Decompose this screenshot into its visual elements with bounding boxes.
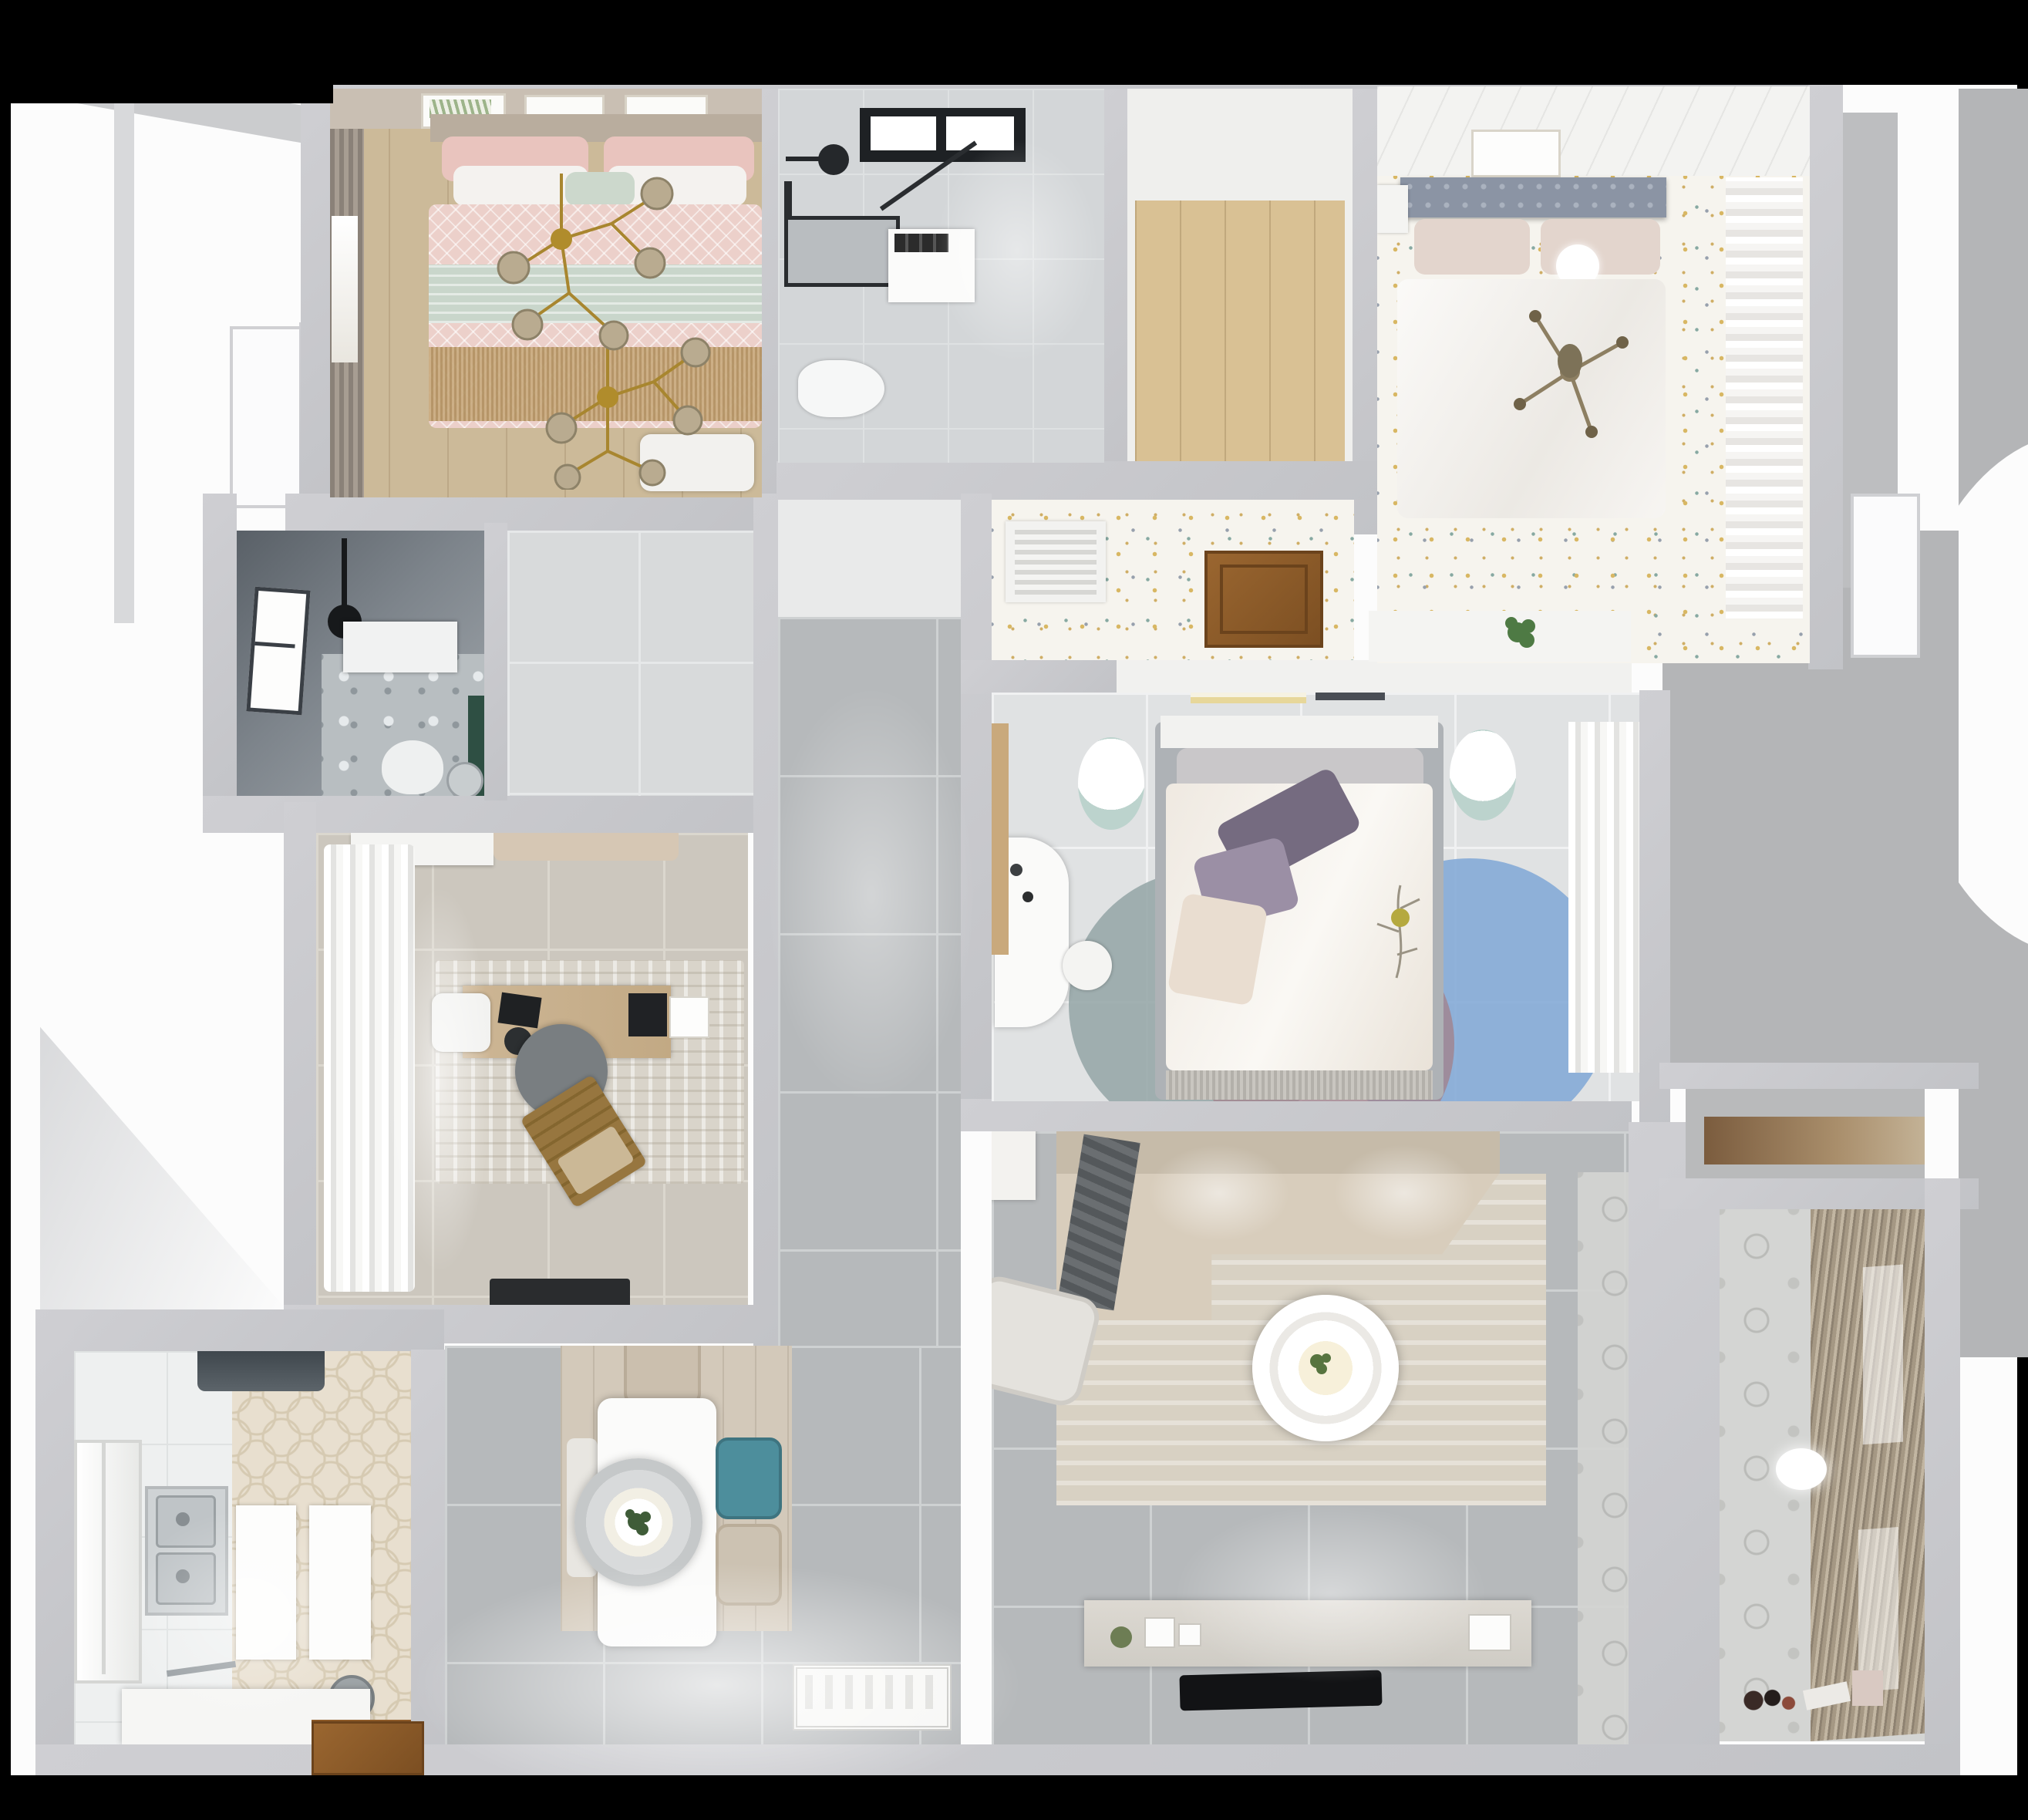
desk-lamp-dot (1022, 891, 1033, 902)
window-bedroom1 (332, 216, 358, 362)
room-livingroom (992, 1131, 1629, 1744)
wall-bedroom1-left (301, 83, 330, 528)
coffee-table-plant-icon (1299, 1341, 1342, 1384)
skylight-pane-right (946, 116, 1014, 150)
sink-drain-1 (176, 1512, 190, 1526)
wall-kitchen-top (35, 1309, 444, 1351)
wall-kitchen-left (35, 1309, 74, 1772)
balcony-box (1852, 1670, 1883, 1706)
room-bathroom2 (237, 531, 484, 796)
room-hallway (778, 617, 961, 1346)
wall-shelfband-left (961, 660, 1120, 694)
dining-chair-teal (716, 1437, 782, 1519)
range-hood (197, 1351, 325, 1391)
black-topleft-corner (0, 0, 333, 103)
study-monitor-flat (628, 993, 667, 1036)
tv-flat (1179, 1670, 1382, 1711)
kitchen-faucet (167, 1661, 236, 1677)
margin-strip-left (114, 102, 134, 623)
sink-drain-2 (176, 1569, 190, 1583)
wall-b1-bath1 (760, 89, 778, 531)
balcony-toys (1743, 1687, 1797, 1714)
duvet-flower-icon (1354, 878, 1447, 986)
bedroom3-closet-curtains (1568, 722, 1639, 1073)
study-roller-blind (494, 833, 679, 861)
art-frame-b2 (1471, 130, 1561, 177)
living-pattern-strip (1578, 1172, 1629, 1744)
bed2-chandelier-icon (1493, 295, 1647, 449)
wall-bedroom1-bottom (285, 494, 779, 531)
balcony-ceiling-light (1776, 1448, 1827, 1490)
pendant-plant-icon (616, 1500, 662, 1546)
skylight-pane-left (871, 116, 936, 150)
nightstand-right (1450, 730, 1516, 821)
shelf-band-bedroom3 (1117, 660, 1632, 696)
study-doormat (490, 1279, 630, 1305)
entry-mat-pattern (805, 1675, 933, 1709)
window-crossbar (254, 642, 295, 649)
room-closet1 (1127, 89, 1353, 461)
wall-bath1-closet (1104, 89, 1127, 494)
wall-hall-east (961, 494, 992, 1103)
dining-chair-top (624, 1346, 701, 1406)
console-frames (1468, 1614, 1511, 1651)
kitchen-cab-door-1 (236, 1505, 296, 1660)
washer-controls (894, 234, 948, 252)
bath2-window (246, 587, 310, 716)
floorplan-stage (0, 0, 2028, 1820)
room-bedroom2 (1377, 86, 1810, 663)
open-door-right (1851, 494, 1920, 658)
room-corridor2 (992, 500, 1354, 660)
open-wood-door (1204, 551, 1323, 648)
room-dining (445, 1346, 961, 1744)
kitchen-door-leaf (312, 1721, 424, 1775)
wall-living-east (1629, 1122, 1720, 1751)
console-box-1 (1144, 1617, 1175, 1648)
door-panel (1220, 565, 1308, 634)
nightstand-left (1078, 737, 1144, 830)
bed2-headboard (1400, 177, 1666, 217)
wall-bedroom3-bottom (961, 1099, 1632, 1131)
bed3-desk-chair (1063, 941, 1112, 990)
wall-hall-west (753, 494, 778, 1346)
shelf-books-yellow (1191, 693, 1306, 703)
bedroom2-ceiling-strip (1377, 86, 1810, 176)
window-mullion (102, 1443, 106, 1674)
bed3-pillow-cream (1167, 892, 1268, 1006)
wall-balcony-east (1925, 1178, 1960, 1753)
room-kitchen (74, 1351, 411, 1744)
wall-nook-top (1659, 1063, 1979, 1089)
blind-highlight-2 (1858, 1527, 1898, 1692)
bath2-cistern (343, 622, 457, 672)
room-bedroom3 (992, 693, 1639, 1101)
open-door-left-margin (230, 326, 305, 508)
bed2-pillow-left (1414, 219, 1530, 275)
wall-right-outer-b2 (1808, 83, 1843, 669)
room-vestibule1 (507, 531, 753, 796)
room-bedroom1 (330, 89, 762, 497)
desk-pen-cup (1010, 864, 1022, 876)
study-laptop (497, 993, 541, 1029)
room-vestibule2 (778, 500, 961, 618)
shower-arm (786, 157, 821, 161)
nook-wood-shelf (1704, 1117, 1925, 1164)
bath2-shower-stem (342, 538, 347, 608)
room-study (316, 833, 748, 1305)
study-whiteboard (669, 996, 709, 1038)
bed3-fringe (1166, 1070, 1433, 1100)
wall-bath1-bottom (777, 461, 1380, 500)
shower-tray (784, 216, 900, 287)
kitchen-window (74, 1440, 142, 1684)
bed3-wood-sidepanel (992, 723, 1009, 955)
plant-icon (1494, 609, 1548, 660)
black-bottom-band (0, 1775, 2028, 1820)
bed2-nightstand (1377, 185, 1408, 233)
console-plant-dot (1110, 1626, 1132, 1648)
shower-head-icon (818, 144, 849, 175)
washer-unit (888, 229, 975, 302)
lounger-cushion (557, 1125, 635, 1195)
study-chair (432, 993, 490, 1052)
kitchen-sink-unit (145, 1486, 228, 1616)
kitchen-cab-door-2 (309, 1505, 371, 1660)
bath2-round-mirror (446, 762, 483, 796)
toilet-1 (798, 360, 884, 417)
chandelier-gold-icon (415, 150, 762, 490)
wall-bath2-left (203, 494, 237, 833)
console-box-2 (1178, 1623, 1201, 1646)
room-nook (1686, 1089, 1925, 1178)
balcony-blinds (1811, 1209, 1925, 1741)
study-curtains (324, 844, 415, 1292)
vent-slats (1015, 529, 1097, 595)
bed3-headboard (1161, 716, 1438, 748)
tv-console (1084, 1600, 1531, 1667)
vent-grille (1006, 521, 1106, 602)
bedroom2-curtain-wardrobe (1726, 177, 1803, 618)
wall-bath2-vest (484, 523, 507, 800)
wall-kitchen-right (411, 1350, 445, 1772)
toilet-2 (382, 740, 443, 794)
living-side-table (992, 1131, 1036, 1200)
shelf-book-dark (1316, 693, 1385, 700)
blind-highlight-1 (1863, 1265, 1903, 1445)
entry-mat (793, 1664, 952, 1731)
closet1-wood-floor (1135, 201, 1345, 461)
wall-study-left (284, 802, 316, 1342)
dining-chair-bottom (716, 1524, 782, 1606)
room-balcony (1720, 1209, 1925, 1741)
room-bathroom1 (778, 89, 1104, 463)
